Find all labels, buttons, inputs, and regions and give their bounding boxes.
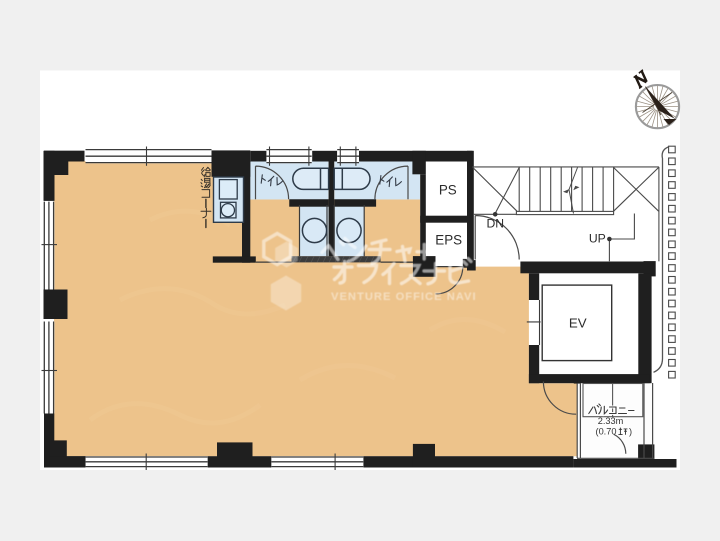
svg-text:PS: PS (439, 182, 457, 197)
svg-text:2.33m: 2.33m (598, 416, 624, 426)
svg-text:(0.70: (0.70 (596, 427, 617, 437)
svg-text:DN: DN (486, 217, 504, 231)
svg-text:EV: EV (569, 316, 587, 331)
svg-text:UP: UP (589, 232, 606, 246)
svg-text:): ) (629, 427, 632, 437)
svg-text:EPS: EPS (435, 233, 462, 248)
svg-text:VENTURE OFFICE NAVI: VENTURE OFFICE NAVI (331, 291, 477, 303)
